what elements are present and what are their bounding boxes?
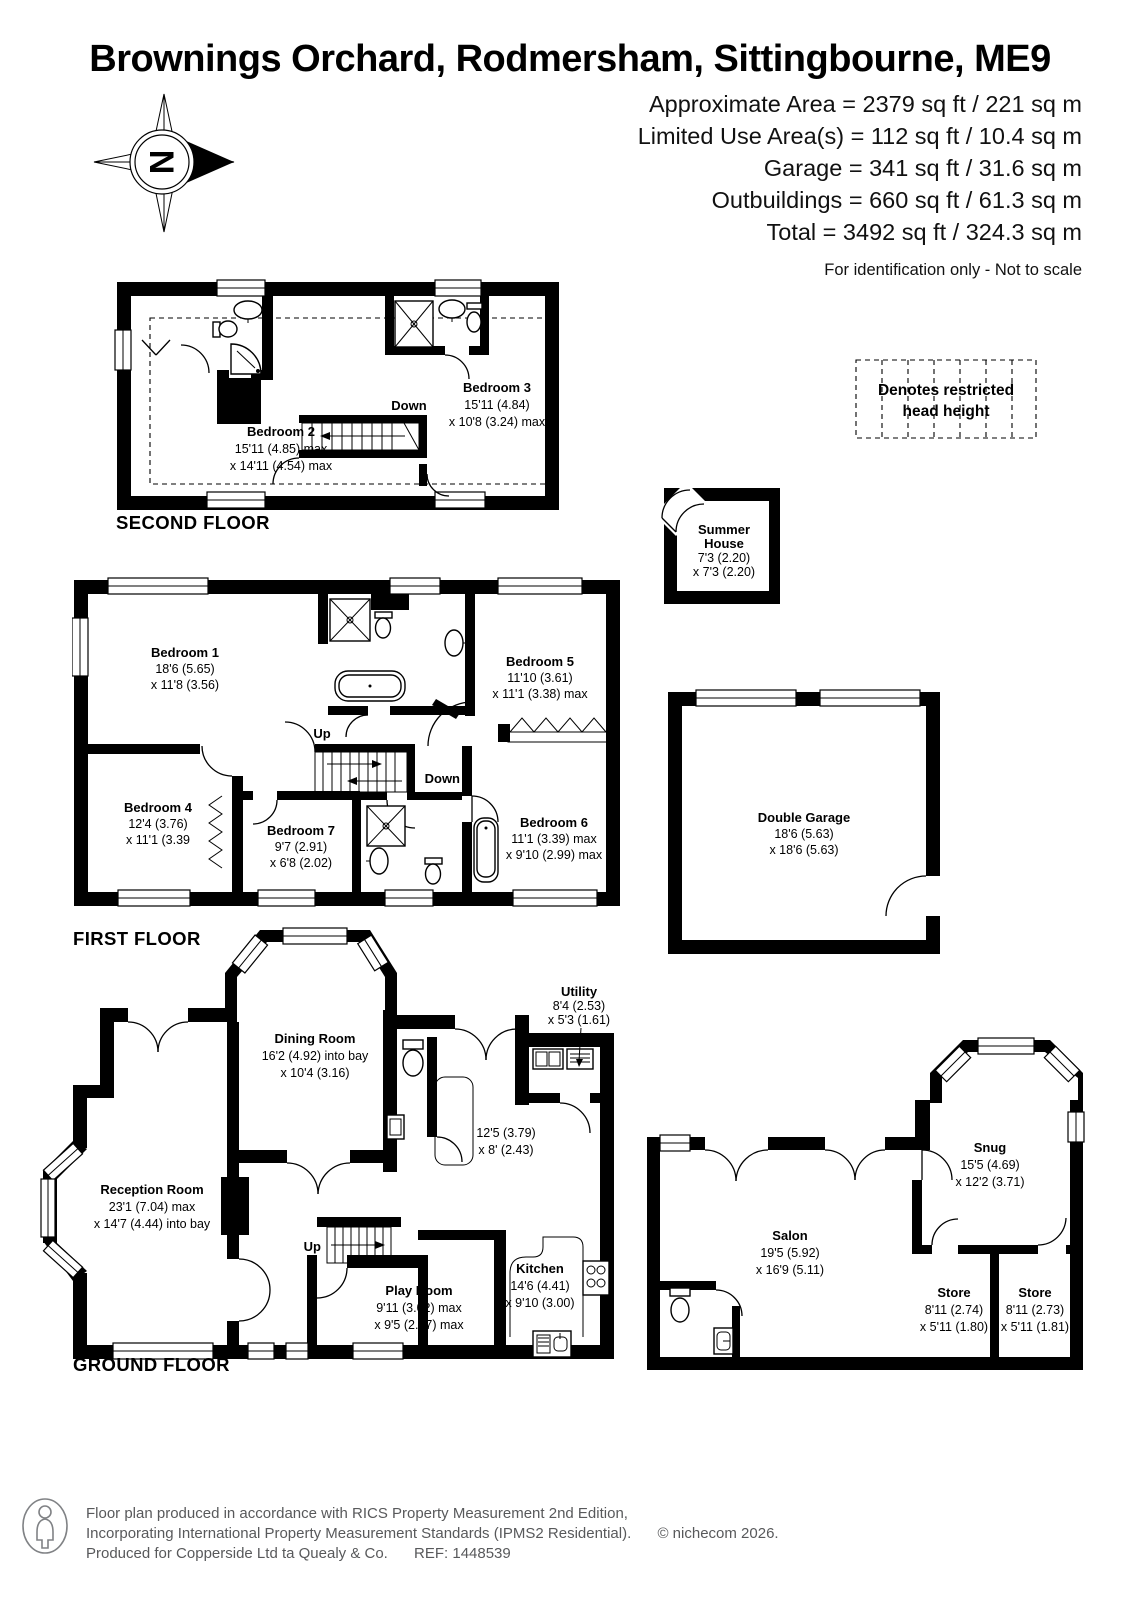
room-dim: x 16'9 (5.11) <box>756 1263 824 1277</box>
second-floor-walls <box>117 282 559 510</box>
room-label-snug: Snug <box>974 1140 1007 1155</box>
room-label-dining: Dining Room <box>275 1031 356 1046</box>
footer-line3: Produced for Copperside Ltd ta Quealy & … <box>86 1544 388 1564</box>
room-dim: x 12'2 (3.71) <box>955 1175 1024 1189</box>
room-dim: x 9'5 (2.87) max <box>374 1318 464 1332</box>
room-label-bedroom5: Bedroom 5 <box>506 654 574 669</box>
stairs-up-label: Up <box>304 1239 321 1254</box>
second-floor-title: SECOND FLOOR <box>116 512 270 534</box>
room-dim-hall: x 8' (2.43) <box>478 1143 533 1157</box>
room-dim: 8'4 (2.53) <box>553 999 605 1013</box>
room-dim: 12'4 (3.76) <box>128 817 187 831</box>
legend-line2: head height <box>903 403 990 420</box>
room-dim: 15'11 (4.84) <box>464 398 529 412</box>
ground-floor-title: GROUND FLOOR <box>73 1354 230 1376</box>
room-label-salon: Salon <box>772 1228 807 1243</box>
restricted-head-height-legend: Denotes restricted head height <box>854 358 1040 442</box>
area-line: Approximate Area = 2379 sq ft / 221 sq m <box>638 88 1082 120</box>
room-dim: x 14'7 (4.44) into bay <box>94 1217 211 1231</box>
room-dim: 16'2 (4.92) into bay <box>262 1049 369 1063</box>
room-label-bedroom1: Bedroom 1 <box>151 645 219 660</box>
person-icon <box>20 1496 72 1556</box>
room-label-store2: Store <box>1018 1285 1051 1300</box>
area-line: Garage = 341 sq ft / 31.6 sq m <box>638 152 1082 184</box>
room-dim: 19'5 (5.92) <box>760 1246 819 1260</box>
stairs-down-label: Down <box>425 771 460 786</box>
room-label-store1: Store <box>937 1285 970 1300</box>
room-dim: x 9'10 (2.99) max <box>506 848 603 862</box>
ground-floor-plan: Reception Room 23'1 (7.04) max x 14'7 (4… <box>15 925 627 1375</box>
room-dim: 8'11 (2.74) <box>925 1303 983 1317</box>
room-label-garage: Double Garage <box>758 810 850 825</box>
first-floor-plan: Bedroom 1 18'6 (5.65) x 11'8 (3.56) Bedr… <box>72 566 624 914</box>
room-dim: x 10'4 (3.16) <box>280 1066 349 1080</box>
stairs-up-label: Up <box>313 726 330 741</box>
room-label-bedroom7: Bedroom 7 <box>267 823 335 838</box>
room-dim: 18'6 (5.63) <box>774 827 833 841</box>
room-label-bedroom6: Bedroom 6 <box>520 815 588 830</box>
room-label-summer-house: Summer <box>698 522 750 537</box>
footer-line2: Incorporating International Property Mea… <box>86 1524 631 1544</box>
room-label-kitchen: Kitchen <box>516 1261 564 1276</box>
room-dim: x 10'8 (3.24) max <box>449 415 546 429</box>
room-dim: 15'5 (4.69) <box>960 1158 1019 1172</box>
hall-cupboard <box>435 1077 473 1165</box>
room-dim: 23'1 (7.04) max <box>109 1200 196 1214</box>
room-dim: x 11'1 (3.39 <box>126 833 190 847</box>
garage-plan: Double Garage 18'6 (5.63) x 18'6 (5.63) <box>660 670 948 962</box>
room-dim: x 5'11 (1.80) <box>920 1320 988 1334</box>
room-dim: x 14'11 (4.54) max <box>230 459 333 473</box>
footer-copyright: © nichecom 2026. <box>657 1524 778 1544</box>
room-dim: 11'10 (3.61) <box>507 671 572 685</box>
room-label-reception: Reception Room <box>100 1182 203 1197</box>
legend-hatching <box>882 360 1012 438</box>
footer-ref: REF: 1448539 <box>414 1544 511 1564</box>
stairs-down-label: Down <box>391 398 426 413</box>
footer: Floor plan produced in accordance with R… <box>20 1496 779 1564</box>
room-label-bedroom3: Bedroom 3 <box>463 380 531 395</box>
room-label-bedroom4: Bedroom 4 <box>124 800 193 815</box>
room-label-bedroom2: Bedroom 2 <box>247 424 315 439</box>
wc-fixtures <box>670 1288 733 1354</box>
page-title: Brownings Orchard, Rodmersham, Sittingbo… <box>40 38 1100 81</box>
room-dim: x 11'1 (3.38) max <box>492 687 588 701</box>
room-dim: x 11'8 (3.56) <box>151 678 219 692</box>
room-dim: 11'1 (3.39) max <box>511 832 597 846</box>
legend-line1: Denotes restricted <box>878 382 1014 399</box>
room-dim: 8'11 (2.73) <box>1006 1303 1064 1317</box>
compass-icon: N <box>86 90 240 238</box>
room-dim: 7'3 (2.20) <box>698 551 750 565</box>
area-line: Limited Use Area(s) = 112 sq ft / 10.4 s… <box>638 120 1082 152</box>
area-line: Total = 3492 sq ft / 324.3 sq m <box>638 216 1082 248</box>
room-label-playroom: Play Room <box>385 1283 452 1298</box>
second-floor-plan: Bedroom 2 15'11 (4.85) max x 14'11 (4.54… <box>112 278 572 538</box>
room-dim: x 9'10 (3.00) <box>505 1296 574 1310</box>
room-dim-hall: 12'5 (3.79) <box>476 1126 535 1140</box>
area-summary: Approximate Area = 2379 sq ft / 221 sq m… <box>638 88 1082 286</box>
room-dim: x 5'3 (1.61) <box>548 1013 610 1027</box>
room-label-utility: Utility <box>561 984 598 999</box>
room-dim: x 7'3 (2.20) <box>693 565 755 579</box>
outbuilding-plan: Snug 15'5 (4.69) x 12'2 (3.71) Salon 19'… <box>638 1028 1098 1380</box>
room-dim: 9'11 (3.02) max <box>376 1301 462 1315</box>
footer-line1: Floor plan produced in accordance with R… <box>86 1504 779 1524</box>
room-dim: 18'6 (5.65) <box>155 662 214 676</box>
room-dim: 15'11 (4.85) max <box>235 442 328 456</box>
utility-fixtures <box>533 1049 593 1069</box>
room-dim: 9'7 (2.91) <box>275 840 327 854</box>
compass-north-letter: N <box>142 150 180 175</box>
footer-text: Floor plan produced in accordance with R… <box>86 1496 779 1564</box>
room-dim: x 5'11 (1.81) <box>1001 1320 1069 1334</box>
scale-disclaimer: For identification only - Not to scale <box>638 254 1082 286</box>
room-label-summer-house2: House <box>704 536 744 551</box>
room-dim: 14'6 (4.41) <box>510 1279 569 1293</box>
room-dim: x 6'8 (2.02) <box>270 856 332 870</box>
room-dim: x 18'6 (5.63) <box>769 843 838 857</box>
area-line: Outbuildings = 660 sq ft / 61.3 sq m <box>638 184 1082 216</box>
summer-house-plan: Summer House 7'3 (2.20) x 7'3 (2.20) <box>648 476 780 610</box>
